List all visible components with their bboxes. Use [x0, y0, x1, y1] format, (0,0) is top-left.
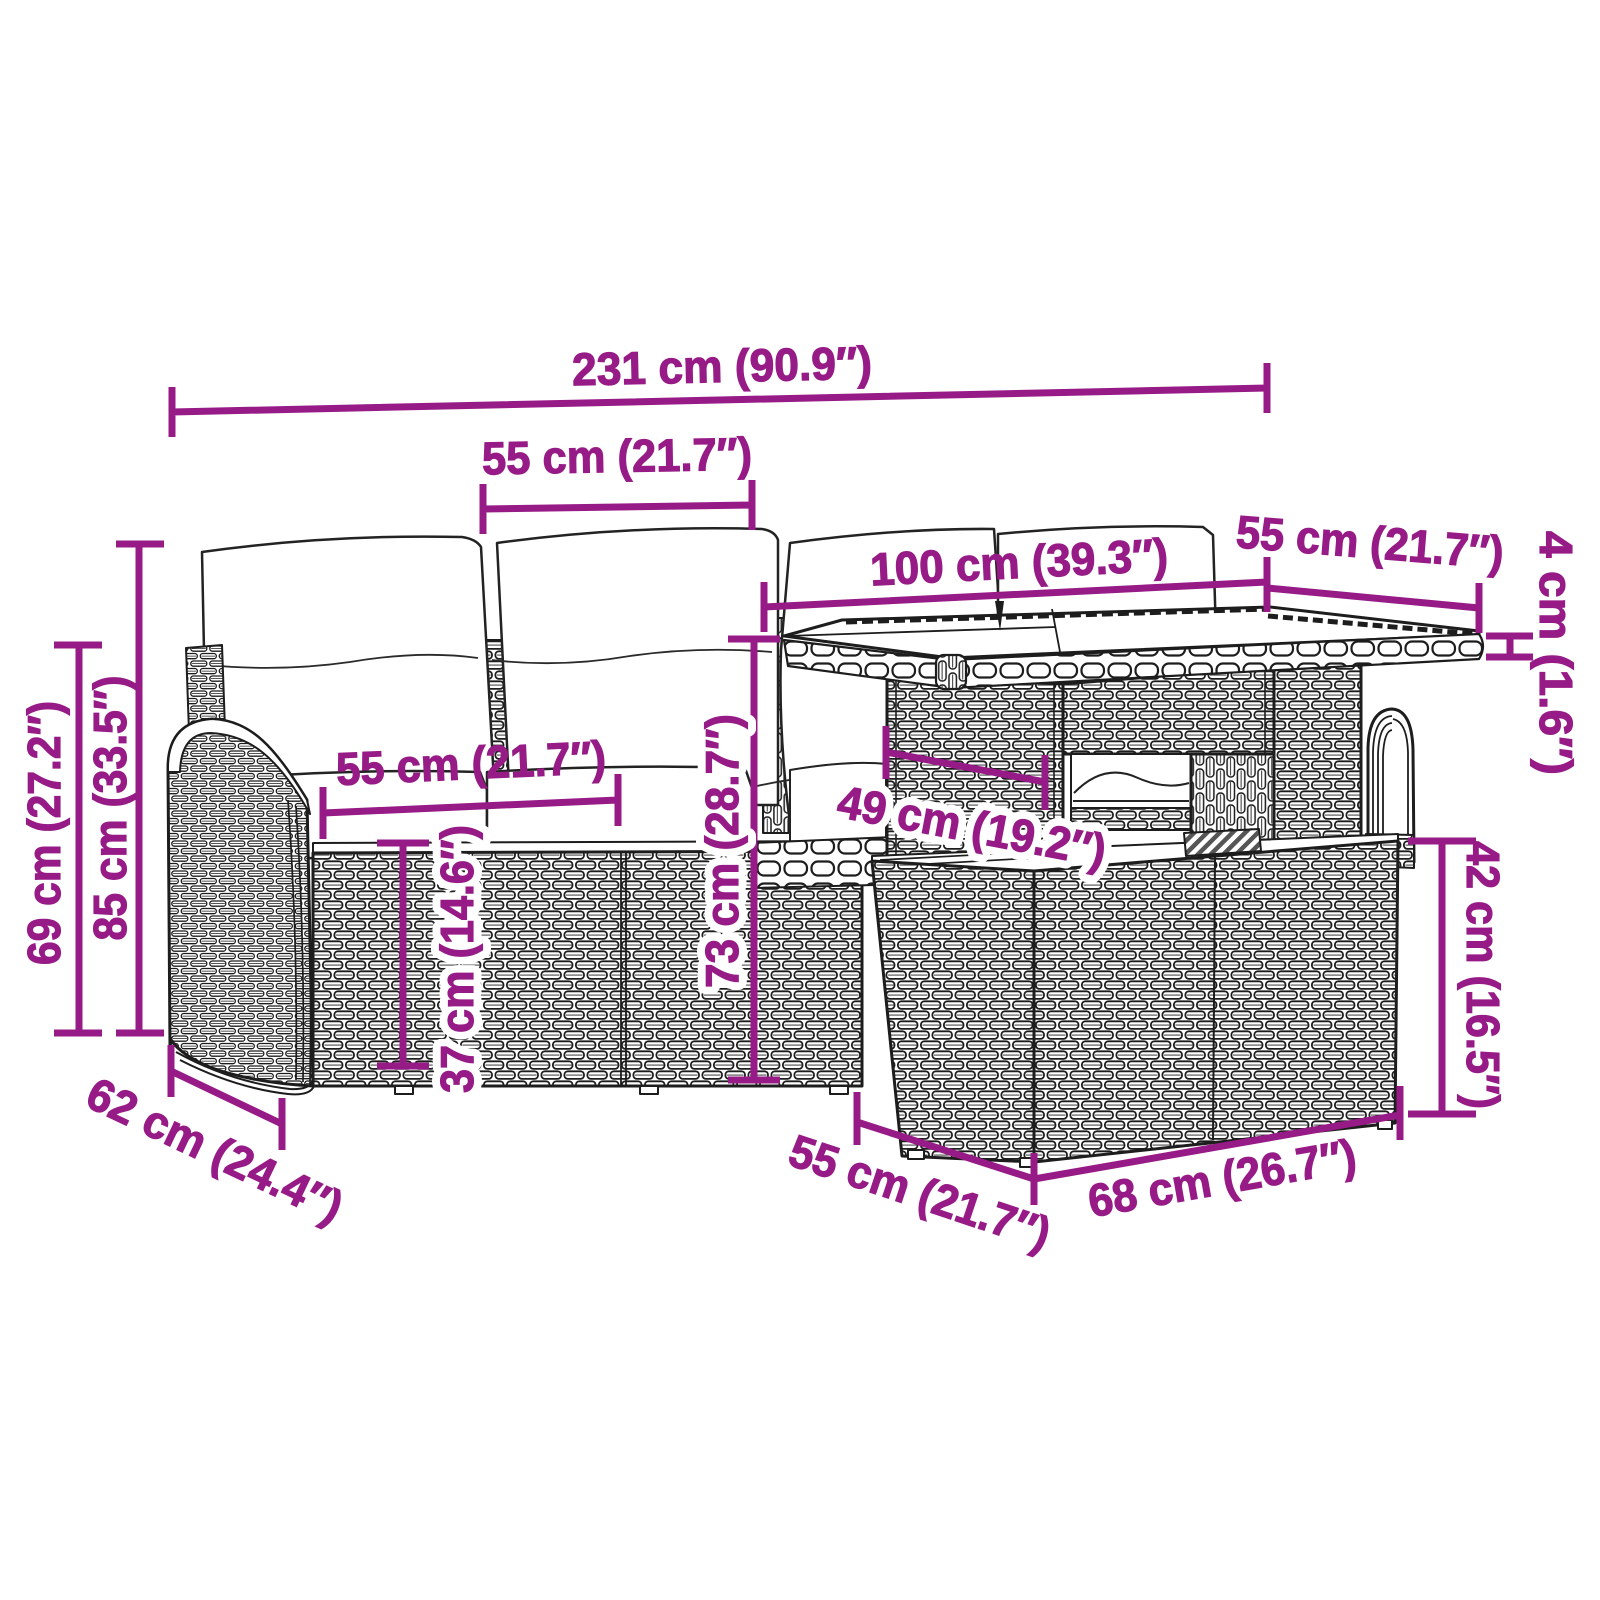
svg-text:85 cm (33.5″): 85 cm (33.5″): [84, 676, 136, 941]
svg-text:231 cm (90.9″): 231 cm (90.9″): [571, 337, 872, 396]
svg-text:69 cm (27.2″): 69 cm (27.2″): [18, 701, 70, 965]
svg-text:42 cm (16.5″): 42 cm (16.5″): [1457, 841, 1509, 1109]
svg-text:37 cm (14.6″): 37 cm (14.6″): [431, 825, 483, 1093]
svg-text:4 cm (1.6″): 4 cm (1.6″): [1530, 531, 1582, 775]
svg-text:73 cm (28.7″): 73 cm (28.7″): [696, 714, 748, 988]
svg-text:55 cm (21.7″): 55 cm (21.7″): [482, 428, 753, 485]
